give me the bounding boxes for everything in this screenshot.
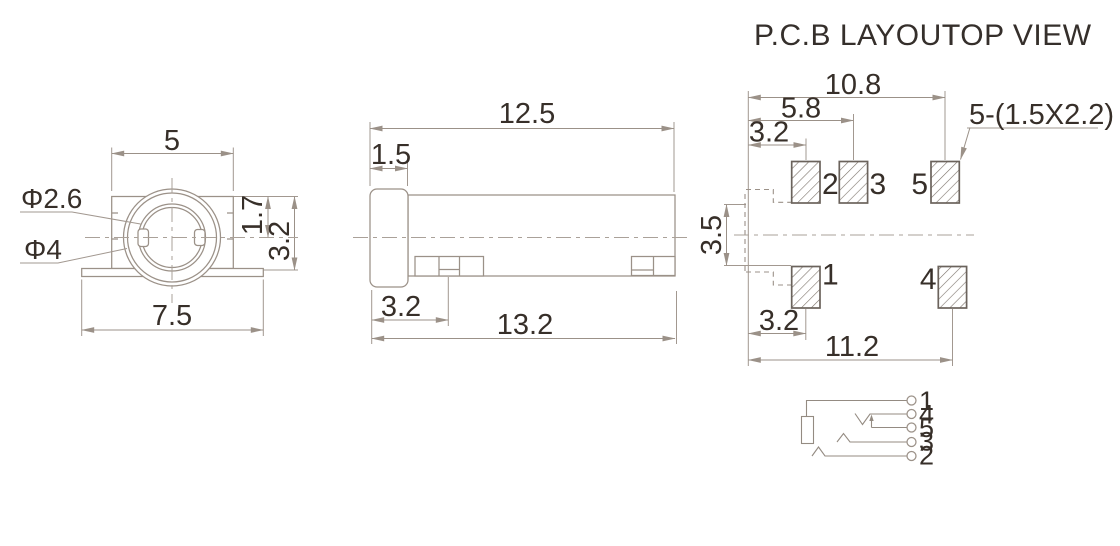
terminal-label-2: 2 (919, 441, 934, 471)
inner-diameter-label: Φ2.6 (21, 183, 82, 214)
dim-pad4-offset-label: 11.2 (825, 331, 879, 363)
side-pin-block-left (415, 257, 484, 277)
pad-5 (931, 162, 959, 204)
side-pin-block-right (632, 257, 676, 276)
dim-overall-length-label: 13.2 (497, 309, 553, 341)
pad-2 (792, 162, 820, 204)
pcb-dashed-body-outline (745, 190, 791, 286)
terminal-circle-1 (907, 396, 916, 405)
jack-schematic: 1 4 5 3 2 (802, 386, 935, 471)
dim-barrel-width-label: 5 (164, 125, 180, 157)
side-view: 12.5 1.5 3.2 13.2 (353, 98, 688, 344)
dim-pin-offset-label: 3.2 (381, 291, 421, 323)
dim-body-height-label: 3.2 (264, 221, 296, 261)
terminal-circle-4 (907, 410, 916, 419)
pad-4-label: 4 (920, 263, 937, 296)
pcb-layout-heading: P.C.B LAYOUT (754, 19, 961, 52)
dim-row-spacing-label: 3.5 (696, 215, 728, 255)
dim-base-width-label: 7.5 (152, 300, 192, 332)
switch-arrow (869, 415, 873, 422)
terminal-circle-5 (907, 423, 916, 432)
front-view: 5 7.5 1.7 3.2 Φ2.6 Φ4 (20, 125, 298, 336)
technical-drawing-page: 5 7.5 1.7 3.2 Φ2.6 Φ4 (0, 0, 1120, 546)
dim-body-length-label: 12.5 (499, 98, 555, 130)
pad-5-label: 5 (911, 168, 928, 201)
top-view-heading: TOP VIEW (942, 19, 1092, 52)
pad-3-label: 3 (870, 168, 887, 201)
outer-diameter-label: Φ4 (24, 234, 62, 265)
dim-pad1-offset-label: 3.2 (759, 305, 799, 337)
terminal-circle-2 (907, 452, 916, 461)
schematic-terminals (907, 396, 916, 461)
dim-bezel-thickness-label: 1.5 (371, 139, 411, 171)
terminal-circle-3 (907, 438, 916, 447)
pad-1-label: 1 (822, 259, 839, 292)
pad-4 (938, 267, 966, 309)
connector-drawing-canvas: 5 7.5 1.7 3.2 Φ2.6 Φ4 (0, 0, 1120, 546)
pad-2-label: 2 (822, 168, 839, 201)
pcb-layout-view: P.C.B LAYOUT TOP VIEW (696, 19, 1114, 366)
pad-3 (839, 162, 867, 204)
pad-1 (792, 267, 820, 309)
pad-size-note: 5-(1.5X2.2) (969, 99, 1114, 131)
schematic-wires (807, 401, 908, 457)
pad-size-note-leader (961, 128, 1099, 160)
sleeve-contact-symbol (802, 417, 814, 444)
dim-pad2-offset-label: 3.2 (749, 117, 789, 149)
dim-pad5-offset-label: 10.8 (825, 69, 881, 101)
